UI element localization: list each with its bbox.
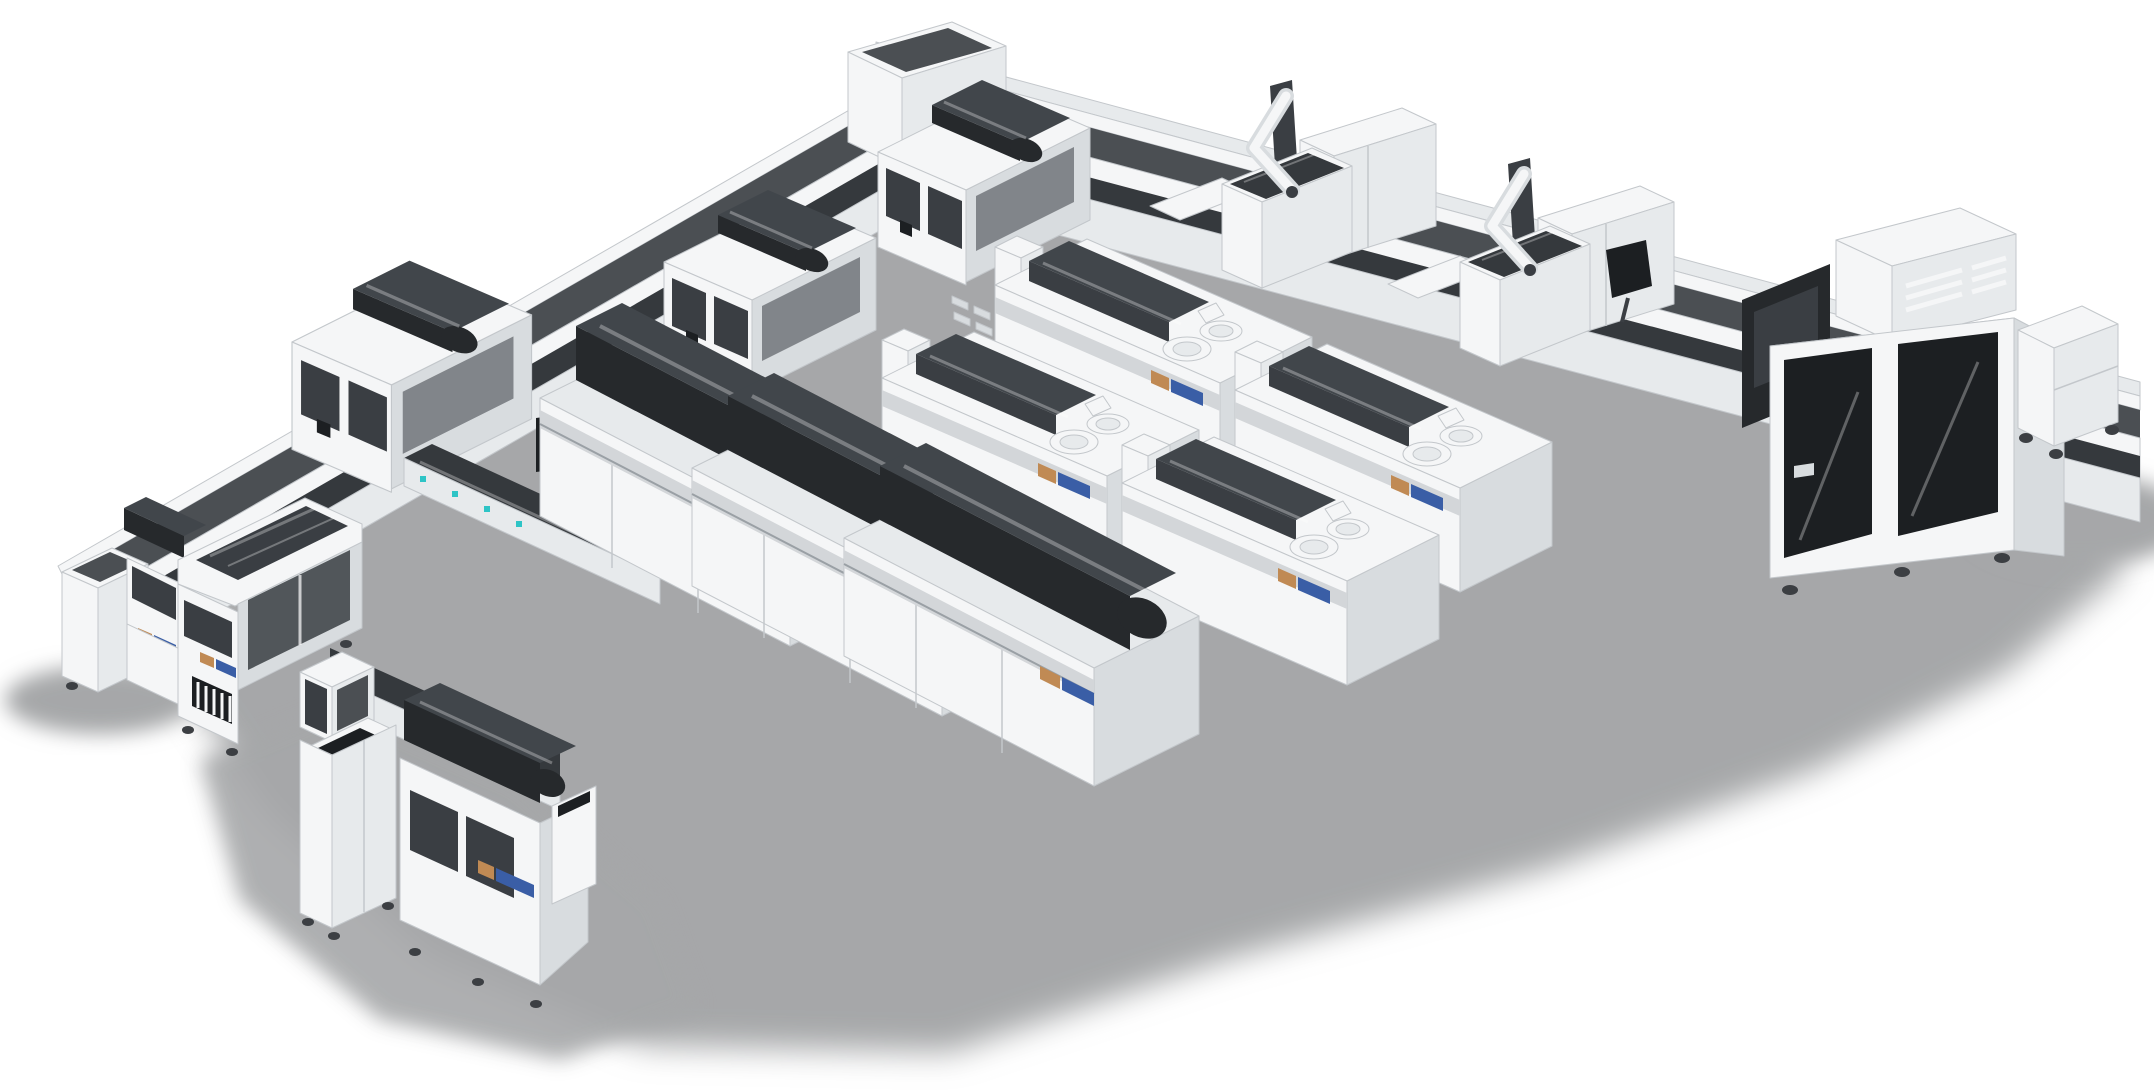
- left-caster-2: [226, 748, 238, 756]
- cart-caster-1: [2019, 433, 2033, 443]
- cart-caster-3: [2105, 425, 2119, 435]
- left-caster-3: [340, 640, 352, 648]
- front-caster-3: [530, 1000, 542, 1008]
- archive-caster-2: [1894, 567, 1910, 577]
- archive-caster-3: [1994, 553, 2010, 563]
- archive-glass-door-1: [1784, 348, 1872, 558]
- cart-front: [2018, 330, 2054, 446]
- end-cap-front: [62, 572, 98, 692]
- kiosk-caster-2: [328, 932, 340, 940]
- front-caster-1: [409, 948, 421, 956]
- end-cap-caster-1: [66, 682, 78, 690]
- lab-automation-render: Isometric 3D product rendering of a modu…: [0, 0, 2154, 1091]
- front-caster-2: [472, 978, 484, 986]
- archive-caster-1: [1782, 585, 1798, 595]
- kiosk-caster-3: [382, 902, 394, 910]
- left-caster-1: [182, 726, 194, 734]
- cart-caster-2: [2049, 449, 2063, 459]
- kiosk-body-front: [300, 740, 332, 928]
- kiosk-caster-1: [302, 918, 314, 926]
- scene-canvas: [0, 0, 2154, 1091]
